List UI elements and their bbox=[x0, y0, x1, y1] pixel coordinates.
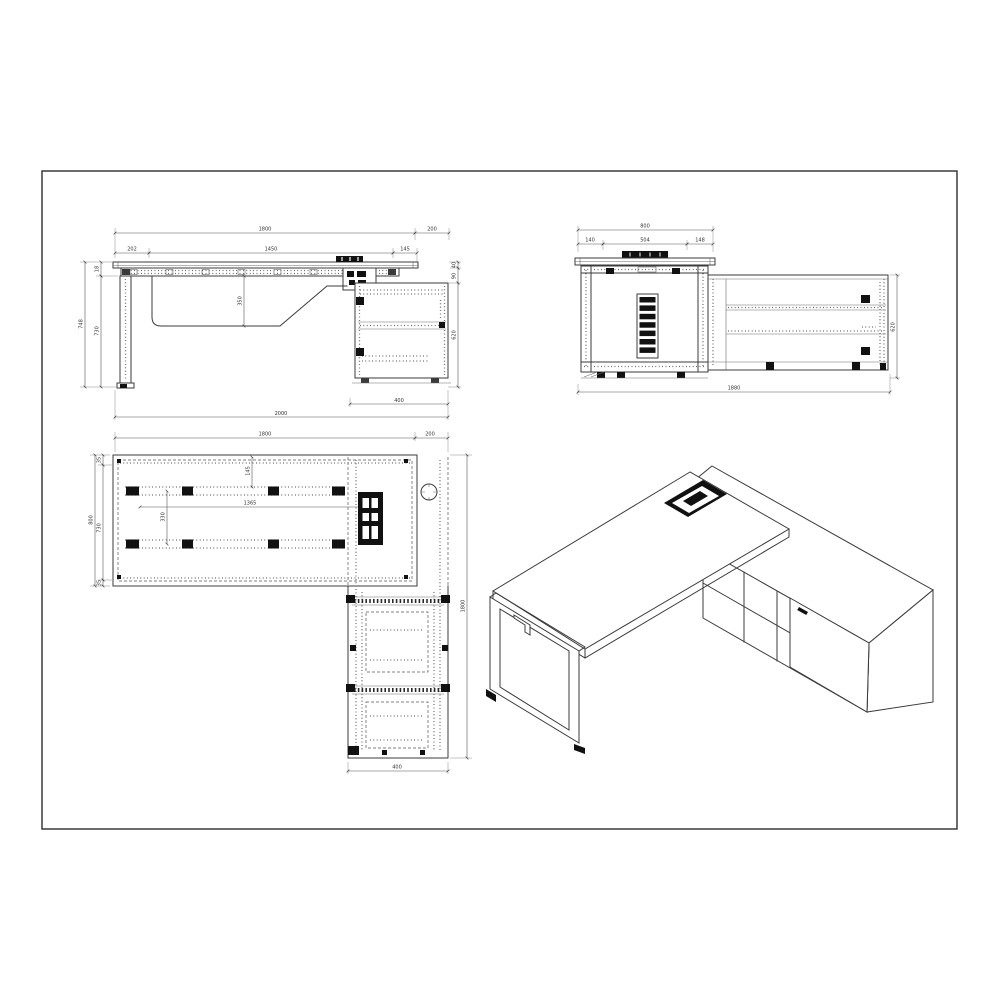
dim-front-cabinet-width: 400 bbox=[394, 398, 404, 404]
dim-front-tray-depth: 350 bbox=[238, 296, 244, 306]
dim-front-left-offset: 202 bbox=[127, 247, 137, 253]
desk-leg-front bbox=[120, 276, 131, 383]
dim-plan-desk-depth: 800 bbox=[89, 515, 95, 525]
dim-end-cabinet-height: 620 bbox=[891, 322, 897, 332]
dim-end-front-inset: 140 bbox=[585, 238, 595, 244]
dim-plan-inner-depth: 730 bbox=[97, 523, 103, 533]
dim-front-top-thickness: 18 bbox=[95, 266, 101, 272]
technical-drawing: 1800 200 202 1450 145 350 bbox=[0, 0, 1000, 1000]
dim-front-apron-gap: 90 bbox=[452, 273, 458, 279]
end-elevation-view: 800 140 504 148 bbox=[575, 224, 900, 396]
grommet-end bbox=[622, 251, 668, 258]
dim-front-top-gap: 40 bbox=[452, 262, 458, 268]
dim-front-overhang: 200 bbox=[427, 227, 437, 233]
dim-plan-rail-length: 1365 bbox=[244, 501, 257, 507]
dim-end-overall-depth: 800 bbox=[640, 224, 650, 230]
cabinet-front bbox=[355, 283, 448, 378]
dim-plan-desk-width: 1800 bbox=[259, 432, 272, 438]
dim-end-back-inset: 148 bbox=[695, 238, 705, 244]
cable-tray-profile bbox=[152, 276, 347, 326]
dim-front-cabinet-height: 620 bbox=[452, 330, 458, 340]
dim-front-rail-span: 1450 bbox=[265, 247, 278, 253]
grommet-plan bbox=[358, 492, 383, 545]
dim-front-overall-width: 1800 bbox=[259, 227, 272, 233]
dim-plan-overhang: 200 bbox=[425, 432, 435, 438]
dim-front-total-height: 748 bbox=[79, 319, 85, 329]
dim-plan-run-length: 1800 bbox=[461, 600, 467, 613]
dim-front-leg-height: 730 bbox=[95, 326, 101, 336]
dim-plan-edge-inset-bottom: 35 bbox=[97, 580, 103, 586]
dim-plan-edge-to-rail: 145 bbox=[246, 466, 252, 476]
dim-front-grommet-offset: 145 bbox=[400, 247, 410, 253]
dim-plan-edge-inset-top: 35 bbox=[97, 457, 103, 463]
dim-plan-cabinet-width: 400 bbox=[392, 765, 402, 771]
dim-end-frame-span: 504 bbox=[640, 238, 650, 244]
dim-plan-rail-spacing: 330 bbox=[161, 512, 167, 522]
desk-top-front bbox=[113, 262, 418, 268]
cabinet-side bbox=[708, 275, 888, 370]
dim-front-overall-length: 2000 bbox=[275, 411, 288, 417]
isometric-view bbox=[486, 466, 933, 754]
dim-end-cabinet-length: 1880 bbox=[728, 386, 741, 392]
front-elevation-view: 1800 200 202 1450 145 350 bbox=[79, 227, 462, 421]
plan-view: 1800 200 1365 330 145 800 35 bbox=[89, 432, 473, 775]
drawing-sheet: 1800 200 202 1450 145 350 bbox=[0, 0, 1000, 1000]
